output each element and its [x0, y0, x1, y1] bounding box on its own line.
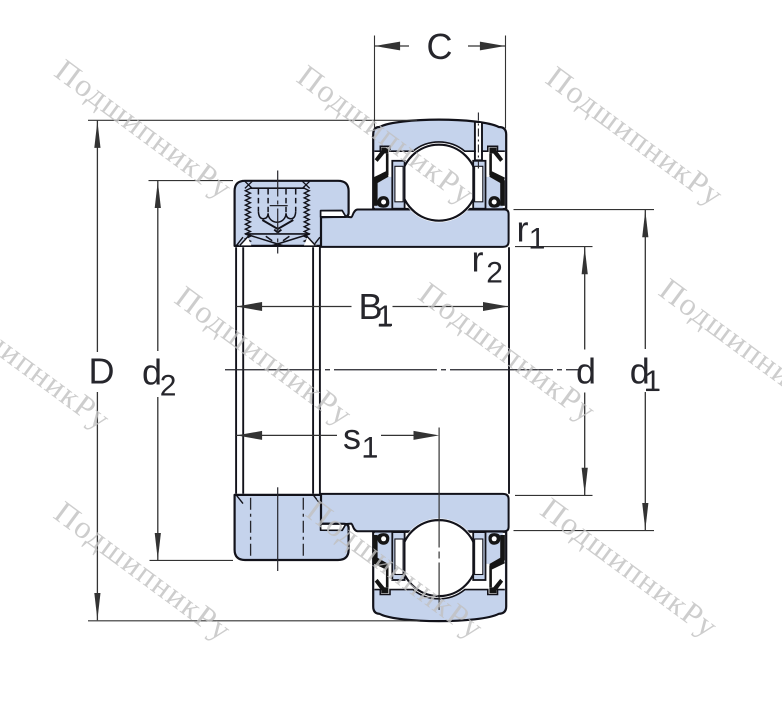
svg-text:D: D — [89, 351, 115, 392]
svg-text:r: r — [472, 239, 484, 280]
svg-text:1: 1 — [377, 300, 394, 333]
svg-text:1: 1 — [362, 431, 379, 464]
svg-text:r: r — [517, 208, 529, 249]
svg-text:1: 1 — [644, 365, 661, 398]
svg-text:2: 2 — [160, 370, 177, 403]
svg-text:2: 2 — [486, 257, 503, 290]
svg-text:C: C — [427, 26, 453, 67]
svg-text:1: 1 — [529, 222, 546, 255]
